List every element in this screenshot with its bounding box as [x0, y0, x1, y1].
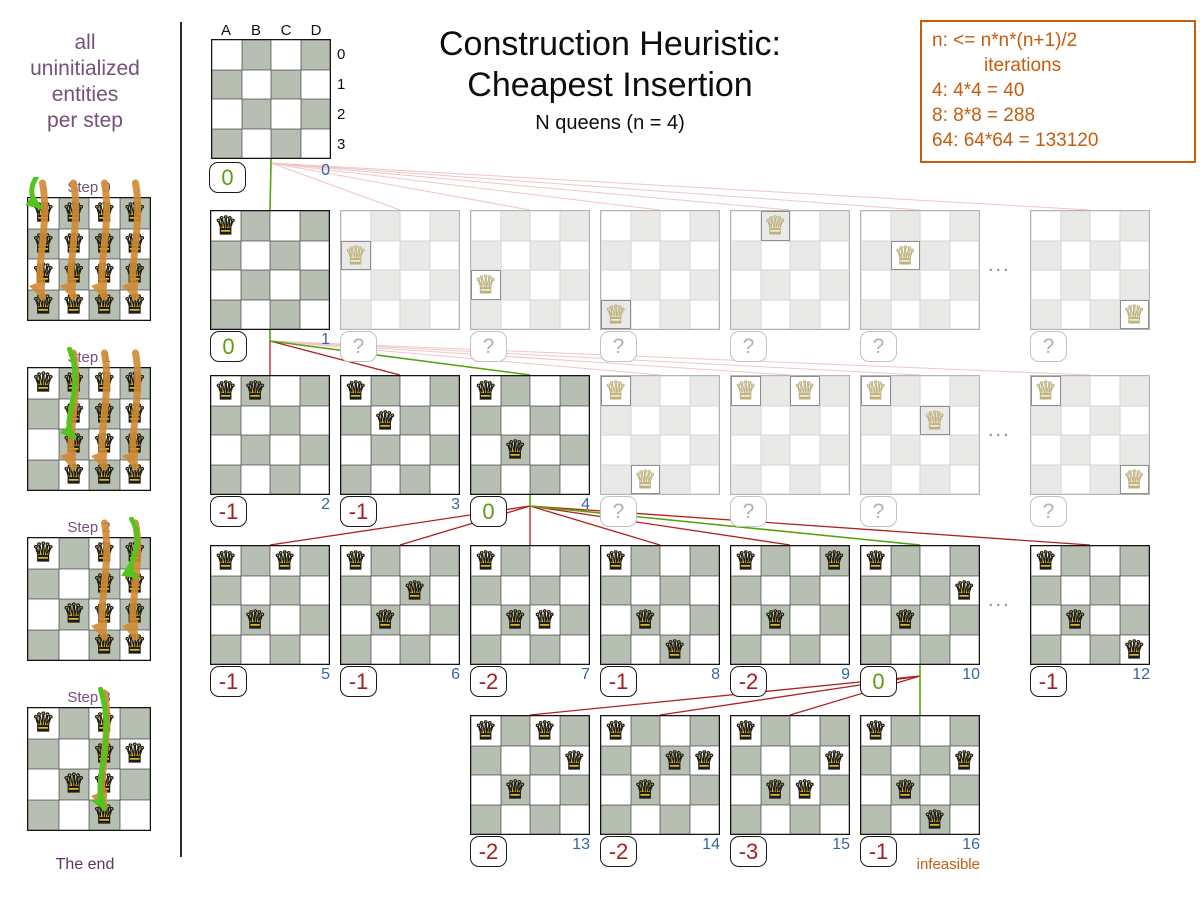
- board-cell: [371, 435, 401, 465]
- board-cell: [820, 635, 850, 665]
- board-cell: [601, 241, 631, 271]
- board-cell: [731, 805, 761, 835]
- board-cell: [371, 211, 401, 241]
- board-cell: [301, 70, 331, 100]
- board-cell: [631, 435, 661, 465]
- board-cell: [1061, 435, 1091, 465]
- board-cell: ♛: [120, 229, 151, 260]
- board-cell: [371, 576, 401, 606]
- board-cell: [430, 300, 460, 330]
- queen-icon: ♛: [1123, 467, 1145, 492]
- board-cell: ♛: [660, 635, 690, 665]
- board-cell: [300, 546, 330, 576]
- board-cell: [920, 376, 950, 406]
- board-cell: [530, 465, 560, 495]
- board-cell: [241, 406, 271, 436]
- board-cell: [820, 211, 850, 241]
- board-cell: [241, 435, 271, 465]
- board-cell: [1031, 241, 1061, 271]
- board-cell: [1061, 406, 1091, 436]
- board-cell: [891, 270, 921, 300]
- board-cell: [271, 70, 301, 100]
- queen-icon: ♛: [244, 378, 266, 403]
- board-cell: [690, 300, 720, 330]
- queen-icon: ♛: [32, 231, 55, 257]
- board-cell: [891, 406, 921, 436]
- board-cell: [430, 270, 460, 300]
- board-cell: [341, 605, 371, 635]
- board-cell: [270, 270, 300, 300]
- board-cell: ♛: [241, 376, 271, 406]
- score-badge: -2: [470, 836, 507, 867]
- queen-icon: ♛: [475, 272, 497, 297]
- board-cell: [790, 270, 820, 300]
- board-cell: [120, 708, 151, 739]
- board-cell: [1090, 300, 1120, 330]
- chess-board: ♛: [340, 210, 460, 330]
- score-badge: -3: [730, 836, 767, 867]
- board-cell: ♛: [891, 605, 921, 635]
- board-cell: [471, 435, 501, 465]
- board-cell: [1090, 211, 1120, 241]
- board-cell: [631, 241, 661, 271]
- board-cell: [861, 635, 891, 665]
- queen-icon: ♛: [123, 632, 146, 658]
- board-cell: ♛: [690, 746, 720, 776]
- board-cell: [660, 435, 690, 465]
- board-cell: [790, 605, 820, 635]
- board-cell: [371, 546, 401, 576]
- chess-board: ♛♛♛♛♛♛♛♛♛♛: [27, 537, 151, 661]
- board-cell: [1120, 270, 1150, 300]
- row-header: 2: [337, 106, 345, 123]
- board-cell: [861, 300, 891, 330]
- board-cell: ♛: [89, 290, 120, 321]
- score-badge: 0: [210, 331, 247, 362]
- board-cell: [211, 406, 241, 436]
- board-cell: ♛: [89, 800, 120, 831]
- board-cell: ♛: [89, 368, 120, 399]
- board-cell: [891, 576, 921, 606]
- board-cell: [950, 805, 980, 835]
- board-cell: [471, 635, 501, 665]
- board-cell: [601, 605, 631, 635]
- queen-icon: ♛: [93, 231, 116, 257]
- board-cell: ♛: [89, 769, 120, 800]
- queen-icon: ♛: [664, 748, 686, 773]
- board-cell: [430, 406, 460, 436]
- board-cell: ♛: [89, 198, 120, 229]
- board-cell: [1090, 465, 1120, 495]
- step-label: Step 3: [27, 689, 151, 706]
- board-cell: [690, 241, 720, 271]
- board-cell: ♛: [28, 229, 59, 260]
- board-cell: ♛: [861, 546, 891, 576]
- board-cell: [241, 211, 271, 241]
- board-cell: [950, 775, 980, 805]
- board-cell: ♛: [59, 460, 90, 491]
- board-cell: ♛: [120, 460, 151, 491]
- board-cell: [790, 435, 820, 465]
- queen-icon: ♛: [823, 748, 845, 773]
- chess-board: ♛♛: [1030, 375, 1150, 495]
- board-cell: [371, 465, 401, 495]
- board-cell: [241, 270, 271, 300]
- board-cell: [400, 435, 430, 465]
- row-header: 1: [337, 76, 345, 93]
- board-cell: ♛: [1120, 635, 1150, 665]
- board-cell: [920, 635, 950, 665]
- title-line-2: Cheapest Insertion: [350, 65, 870, 106]
- board-cell: [731, 300, 761, 330]
- board-index: 13: [532, 836, 590, 854]
- board-cell: [660, 716, 690, 746]
- board-cell: ♛: [28, 538, 59, 569]
- board-cell: [341, 635, 371, 665]
- queen-icon: ♛: [563, 748, 585, 773]
- queen-icon: ♛: [504, 437, 526, 462]
- board-cell: [690, 376, 720, 406]
- board-cell: [530, 300, 560, 330]
- caption-line: per step: [5, 108, 165, 134]
- board-cell: [731, 211, 761, 241]
- chess-board: ♛♛♛♛: [730, 715, 850, 835]
- board-cell: [861, 805, 891, 835]
- board-cell: [241, 576, 271, 606]
- queen-icon: ♛: [62, 231, 85, 257]
- board-cell: [950, 376, 980, 406]
- board-cell: ♛: [120, 739, 151, 770]
- board-cell: [341, 406, 371, 436]
- board-cell: [241, 300, 271, 330]
- score-badge: ?: [1030, 331, 1067, 362]
- page-title: Construction Heuristic: Cheapest Inserti…: [350, 24, 870, 106]
- board-cell: [211, 241, 241, 271]
- board-cell: [790, 241, 820, 271]
- board-cell: [761, 635, 791, 665]
- board-cell: [28, 460, 59, 491]
- board-cell: [270, 300, 300, 330]
- board-cell: ♛: [861, 716, 891, 746]
- board-cell: [560, 635, 590, 665]
- queen-icon: ♛: [764, 607, 786, 632]
- step-label: Step 1: [27, 349, 151, 366]
- board-cell: [601, 270, 631, 300]
- column-header: B: [241, 22, 271, 39]
- queen-icon: ♛: [865, 378, 887, 403]
- info-line: 64: 64*64 = 133120: [932, 128, 1184, 153]
- board-cell: ♛: [241, 605, 271, 635]
- board-cell: [920, 546, 950, 576]
- board-cell: [731, 406, 761, 436]
- caption-line: entities: [5, 82, 165, 108]
- queen-icon: ♛: [93, 540, 116, 566]
- board-cell: [601, 211, 631, 241]
- board-cell: [211, 465, 241, 495]
- board-cell: [920, 435, 950, 465]
- chess-board: ♛♛♛: [600, 545, 720, 665]
- board-cell: [501, 270, 531, 300]
- board-cell: [1061, 241, 1091, 271]
- board-cell: [950, 605, 980, 635]
- queen-icon: ♛: [93, 802, 116, 828]
- queen-icon: ♛: [504, 777, 526, 802]
- board-cell: [601, 435, 631, 465]
- board-cell: ♛: [530, 716, 560, 746]
- queen-icon: ♛: [605, 302, 627, 327]
- board-cell: [891, 546, 921, 576]
- board-cell: [731, 576, 761, 606]
- board-cell: [241, 465, 271, 495]
- board-index: 9: [792, 666, 850, 684]
- board-cell: ♛: [89, 399, 120, 430]
- board-cell: [430, 241, 460, 271]
- queen-icon: ♛: [93, 431, 116, 457]
- score-badge: ?: [340, 331, 377, 362]
- board-cell: [861, 406, 891, 436]
- board-cell: [471, 241, 501, 271]
- chess-board: ♛♛♛: [730, 545, 850, 665]
- queen-icon: ♛: [605, 718, 627, 743]
- board-cell: [560, 716, 590, 746]
- board-cell: [300, 211, 330, 241]
- chess-board: ♛♛: [860, 375, 980, 495]
- queen-icon: ♛: [123, 571, 146, 597]
- board-cell: [861, 270, 891, 300]
- queen-icon: ♛: [475, 378, 497, 403]
- board-cell: [790, 465, 820, 495]
- board-cell: [560, 270, 590, 300]
- info-line: 4: 4*4 = 40: [932, 78, 1184, 103]
- board-cell: [1061, 635, 1091, 665]
- board-cell: [861, 775, 891, 805]
- queen-icon: ♛: [475, 718, 497, 743]
- iterations-info-box: n: <= n*n*(n+1)/2 iterations 4: 4*4 = 40…: [920, 20, 1196, 163]
- board-cell: [631, 300, 661, 330]
- board-cell: [430, 465, 460, 495]
- queen-icon: ♛: [32, 261, 55, 287]
- board-cell: [400, 241, 430, 271]
- score-badge: 0: [209, 162, 246, 193]
- board-cell: [820, 605, 850, 635]
- board-cell: ♛: [820, 546, 850, 576]
- board-index: 8: [662, 666, 720, 684]
- board-cell: [820, 270, 850, 300]
- board-cell: [28, 399, 59, 430]
- score-badge: ?: [730, 496, 767, 527]
- queen-icon: ♛: [62, 370, 85, 396]
- board-cell: ♛: [861, 376, 891, 406]
- queen-icon: ♛: [345, 548, 367, 573]
- board-cell: [861, 241, 891, 271]
- queen-icon: ♛: [605, 548, 627, 573]
- board-cell: [341, 211, 371, 241]
- board-cell: ♛: [120, 198, 151, 229]
- board-cell: [790, 546, 820, 576]
- queen-icon: ♛: [735, 548, 757, 573]
- queen-icon: ♛: [693, 748, 715, 773]
- queen-icon: ♛: [764, 213, 786, 238]
- board-cell: [400, 211, 430, 241]
- board-cell: ♛: [59, 399, 90, 430]
- board-cell: [560, 775, 590, 805]
- queen-icon: ♛: [123, 741, 146, 767]
- infeasible-label: infeasible: [860, 856, 980, 873]
- board-cell: [242, 70, 272, 100]
- chess-board: [211, 39, 331, 159]
- board-cell: [560, 406, 590, 436]
- board-cell: ♛: [601, 546, 631, 576]
- board-cell: ♛: [631, 775, 661, 805]
- score-badge: ?: [1030, 496, 1067, 527]
- board-cell: [271, 40, 301, 70]
- board-cell: [430, 376, 460, 406]
- board-cell: ♛: [59, 198, 90, 229]
- board-cell: [920, 576, 950, 606]
- board-index: 3: [402, 496, 460, 514]
- board-cell: [300, 635, 330, 665]
- board-index: 1: [272, 331, 330, 349]
- board-cell: [300, 465, 330, 495]
- queen-icon: ♛: [244, 607, 266, 632]
- board-cell: [1120, 605, 1150, 635]
- board-cell: [950, 435, 980, 465]
- board-cell: [471, 465, 501, 495]
- board-cell: [501, 300, 531, 330]
- board-cell: [371, 241, 401, 271]
- board-cell: ♛: [920, 406, 950, 436]
- board-cell: [530, 376, 560, 406]
- board-cell: [950, 241, 980, 271]
- board-cell: ♛: [120, 538, 151, 569]
- board-cell: ♛: [59, 769, 90, 800]
- board-cell: ♛: [341, 241, 371, 271]
- board-cell: [1061, 300, 1091, 330]
- board-cell: [731, 605, 761, 635]
- board-cell: ♛: [89, 429, 120, 460]
- queen-icon: ♛: [894, 777, 916, 802]
- board-cell: [950, 270, 980, 300]
- board-cell: ♛: [270, 546, 300, 576]
- board-cell: [59, 569, 90, 600]
- board-cell: [690, 805, 720, 835]
- board-cell: ♛: [530, 605, 560, 635]
- chess-board: ♛♛: [730, 375, 850, 495]
- queen-icon: ♛: [953, 578, 975, 603]
- chess-board: ♛♛♛: [1030, 545, 1150, 665]
- page-subtitle: N queens (n = 4): [350, 112, 870, 135]
- board-cell: [950, 300, 980, 330]
- info-line: 8: 8*8 = 288: [932, 103, 1184, 128]
- board-index: 7: [532, 666, 590, 684]
- column-header: C: [271, 22, 301, 39]
- board-cell: ♛: [89, 460, 120, 491]
- board-cell: [501, 635, 531, 665]
- queen-icon: ♛: [1123, 637, 1145, 662]
- queen-icon: ♛: [274, 548, 296, 573]
- queen-icon: ♛: [93, 370, 116, 396]
- board-cell: ♛: [950, 746, 980, 776]
- board-cell: [660, 376, 690, 406]
- board-index: 14: [662, 836, 720, 854]
- board-cell: [660, 406, 690, 436]
- queen-icon: ♛: [93, 292, 116, 318]
- board-cell: [1090, 376, 1120, 406]
- board-cell: ♛: [371, 406, 401, 436]
- board-cell: [430, 635, 460, 665]
- board-cell: [400, 270, 430, 300]
- board-cell: [28, 599, 59, 630]
- board-cell: ♛: [28, 290, 59, 321]
- queen-icon: ♛: [62, 771, 85, 797]
- board-cell: [1090, 435, 1120, 465]
- ellipsis: ...: [988, 254, 1011, 277]
- board-cell: [731, 775, 761, 805]
- board-cell: ♛: [761, 775, 791, 805]
- caption-line: all: [5, 30, 165, 56]
- board-cell: [471, 406, 501, 436]
- ellipsis: ...: [988, 419, 1011, 442]
- chess-board: ♛♛♛: [210, 545, 330, 665]
- board-cell: [300, 406, 330, 436]
- board-cell: [59, 538, 90, 569]
- info-line: n: <= n*n*(n+1)/2: [932, 28, 1184, 53]
- board-cell: [891, 376, 921, 406]
- score-badge: ?: [470, 331, 507, 362]
- board-cell: [891, 465, 921, 495]
- board-cell: [660, 300, 690, 330]
- board-cell: ♛: [790, 376, 820, 406]
- board-cell: [28, 739, 59, 770]
- board-index: 0: [272, 162, 330, 180]
- board-cell: [790, 300, 820, 330]
- board-cell: [1090, 635, 1120, 665]
- board-cell: [861, 435, 891, 465]
- board-cell: [560, 300, 590, 330]
- board-cell: [761, 406, 791, 436]
- queen-icon: ♛: [634, 777, 656, 802]
- board-cell: ♛: [501, 435, 531, 465]
- board-cell: [820, 805, 850, 835]
- score-badge: -1: [210, 666, 247, 697]
- board-cell: [761, 300, 791, 330]
- board-cell: [270, 605, 300, 635]
- board-cell: [530, 546, 560, 576]
- board-cell: ♛: [601, 376, 631, 406]
- board-cell: [1061, 546, 1091, 576]
- board-cell: [950, 635, 980, 665]
- board-cell: [891, 746, 921, 776]
- chess-board: ♛♛: [210, 375, 330, 495]
- queen-icon: ♛: [605, 378, 627, 403]
- board-cell: [59, 800, 90, 831]
- board-cell: [660, 465, 690, 495]
- board-cell: ♛: [59, 429, 90, 460]
- board-cell: [400, 635, 430, 665]
- the-end-label: The end: [5, 856, 165, 874]
- board-cell: [212, 129, 242, 159]
- board-cell: ♛: [471, 716, 501, 746]
- board-cell: [120, 800, 151, 831]
- chess-board: ♛: [730, 210, 850, 330]
- score-badge: ?: [600, 331, 637, 362]
- board-cell: [400, 605, 430, 635]
- board-cell: ♛: [820, 746, 850, 776]
- board-cell: ♛: [28, 198, 59, 229]
- board-cell: [761, 576, 791, 606]
- queen-icon: ♛: [62, 462, 85, 488]
- board-cell: [790, 716, 820, 746]
